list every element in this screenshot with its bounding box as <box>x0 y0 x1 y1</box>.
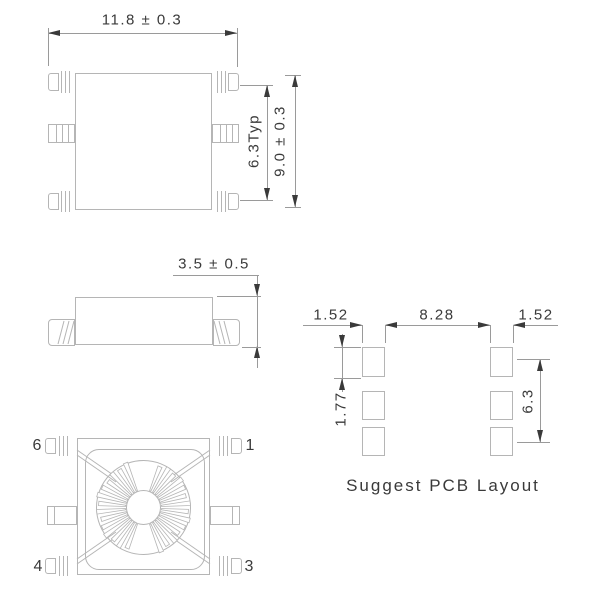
drawing-canvas: 11.8 ± 0.3 6.3Typ 9.0 ± 0.3 3.5 ± 0.5 <box>0 0 600 600</box>
pin-number-6: 6 <box>33 437 42 455</box>
dim-pad-width-left-label: 1.52 <box>313 307 348 324</box>
pin-stripe <box>217 71 218 93</box>
extension-line <box>240 200 273 201</box>
pin-stripe <box>59 556 60 576</box>
extension-line <box>237 28 238 67</box>
tab-middle-left <box>47 506 77 525</box>
side-pin-right <box>213 319 240 346</box>
pcb-pad <box>362 347 385 377</box>
pin-stripe <box>56 125 57 142</box>
pin-stripe <box>232 125 233 142</box>
dim-body-width-label: 11.8 ± 0.3 <box>102 12 183 29</box>
pin-stripe <box>223 436 224 456</box>
arrow-right-icon <box>350 322 362 328</box>
pin-stripe <box>68 125 69 142</box>
pin-stripe <box>61 191 62 212</box>
pin-stripe <box>225 71 226 93</box>
pin-stripe <box>226 125 227 142</box>
extension-line <box>490 325 491 343</box>
arrow-left-icon <box>48 30 60 36</box>
pin-stripe <box>67 436 68 456</box>
dim-line <box>295 75 296 207</box>
top-view-body-outline <box>75 73 212 210</box>
pin-stripe <box>220 125 221 142</box>
pin-6 <box>45 437 77 455</box>
extension-line <box>385 325 386 343</box>
pin-cap <box>228 193 239 210</box>
pin-stripe <box>225 191 226 212</box>
arrow-right-icon <box>478 322 490 328</box>
pcb-pad <box>362 427 385 456</box>
pin-number-1: 1 <box>246 437 255 455</box>
extension-line <box>334 347 361 348</box>
pin-cap <box>231 438 242 454</box>
dim-pad-pitch-label: 8.28 <box>419 307 454 324</box>
pin-stripe <box>221 191 222 212</box>
pin-stripe <box>65 191 66 212</box>
tab-line <box>54 507 55 524</box>
pin-4 <box>45 557 77 575</box>
pin-1 <box>210 437 242 455</box>
extension-line <box>48 28 49 66</box>
arrow-up-icon <box>339 378 345 390</box>
pin-cap <box>45 558 56 574</box>
pin-stripe <box>63 556 64 576</box>
arrow-down-icon <box>292 195 298 207</box>
pin-stripe <box>62 125 63 142</box>
pin-number-4: 4 <box>34 558 43 576</box>
pin-stripe <box>67 556 68 576</box>
extension-line <box>517 442 550 443</box>
pin-top-right <box>212 72 239 92</box>
pin-stripe <box>219 436 220 456</box>
tab-line <box>232 507 233 524</box>
pin-middle-left <box>48 124 75 143</box>
extension-line <box>513 325 514 343</box>
arrow-up-icon <box>264 85 270 97</box>
arrow-down-icon <box>264 188 270 200</box>
pin-stripe <box>61 71 62 93</box>
pin-stripe <box>221 71 222 93</box>
extension-line <box>517 359 550 360</box>
pin-stripe <box>227 436 228 456</box>
bobbin-outline <box>85 449 205 570</box>
extension-line <box>242 347 261 348</box>
dim-line <box>385 325 490 326</box>
pin-stripe <box>65 71 66 93</box>
dim-line <box>48 33 237 34</box>
pcb-pad <box>490 391 513 420</box>
pin-cap <box>228 73 239 91</box>
pin-cap <box>231 558 242 574</box>
dim-body-height-label: 9.0 ± 0.3 <box>272 105 289 177</box>
pin-cap <box>45 438 56 454</box>
extension-line <box>334 378 361 379</box>
pin-number-3: 3 <box>245 558 254 576</box>
pcb-pad <box>490 347 513 377</box>
dim-component-height-label: 3.5 ± 0.5 <box>178 256 250 273</box>
extension-line <box>285 207 301 208</box>
dim-leader-line <box>173 275 259 276</box>
pin-stripe <box>217 191 218 212</box>
arrow-down-icon <box>254 284 260 296</box>
pin-stripe <box>227 556 228 576</box>
pin-stripe <box>59 436 60 456</box>
arrow-down-icon <box>339 335 345 347</box>
pin-3 <box>210 557 242 575</box>
extension-line <box>217 296 261 297</box>
pin-stripe <box>69 191 70 212</box>
pcb-layout-caption: Suggest PCB Layout <box>346 476 540 496</box>
pcb-pad <box>362 391 385 420</box>
pin-bottom-left <box>48 192 75 211</box>
arrow-down-icon <box>537 430 543 442</box>
pin-middle-right <box>212 124 239 143</box>
dim-pad-width-right-label: 1.52 <box>518 307 553 324</box>
pcb-pad <box>490 427 513 456</box>
pin-stripe <box>63 436 64 456</box>
pin-stripe <box>223 556 224 576</box>
dim-line <box>267 85 268 200</box>
dim-pad-height-label: 1.77 <box>333 391 350 426</box>
tab-middle-right <box>210 506 240 525</box>
pin-bottom-right <box>212 192 239 211</box>
arrow-right-icon <box>225 30 237 36</box>
arrow-up-icon <box>292 75 298 87</box>
side-view-body-outline <box>75 297 213 345</box>
pin-cap <box>48 193 59 210</box>
arrow-up-icon <box>537 359 543 371</box>
dim-row-span-label: 6.3 <box>520 388 537 413</box>
pin-top-left <box>48 72 75 92</box>
arrow-left-icon <box>385 322 397 328</box>
pin-cap <box>48 73 59 91</box>
side-pin-left <box>48 319 75 346</box>
pin-stripe <box>219 556 220 576</box>
extension-line <box>362 325 363 343</box>
pin-stripe <box>69 71 70 93</box>
dim-pin-span-label: 6.3Typ <box>246 114 263 168</box>
